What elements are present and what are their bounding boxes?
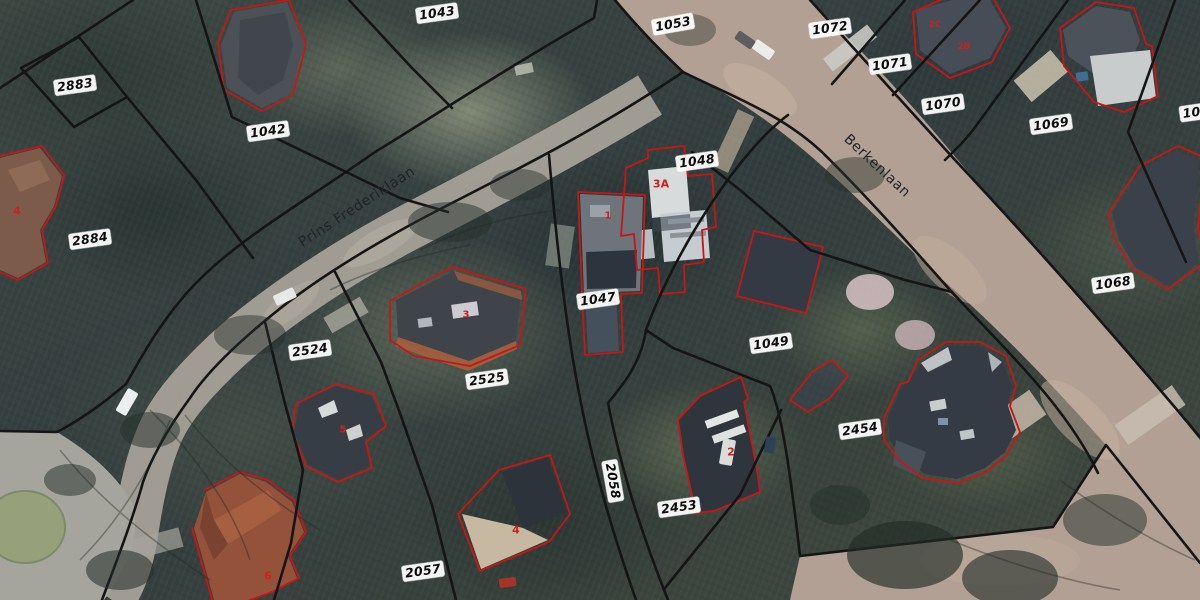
house-number-3: 3: [463, 310, 470, 321]
blossom-tree: [846, 274, 894, 310]
blossom-tree: [895, 320, 935, 350]
house-number-3a: 3A: [653, 178, 669, 191]
house-number-2b: 2B: [958, 42, 970, 52]
house-number-5: 5: [340, 425, 347, 436]
car-red: [499, 577, 517, 588]
car-blue: [764, 436, 777, 453]
house-number-2: 2: [727, 446, 735, 459]
parcel-label-106-clipped: 106: [1179, 102, 1200, 122]
house-number-4-south: 4: [512, 524, 520, 537]
car-white-corner: [115, 388, 138, 417]
house-number-4-west: 4: [13, 205, 21, 218]
map-viewport[interactable]: Prins Frederiklaan Berkenlaan 2883 1042 …: [0, 0, 1200, 600]
house-number-2c: 2C: [929, 20, 941, 30]
house-number-1: 1: [605, 211, 612, 222]
house-number-6: 6: [264, 570, 272, 583]
